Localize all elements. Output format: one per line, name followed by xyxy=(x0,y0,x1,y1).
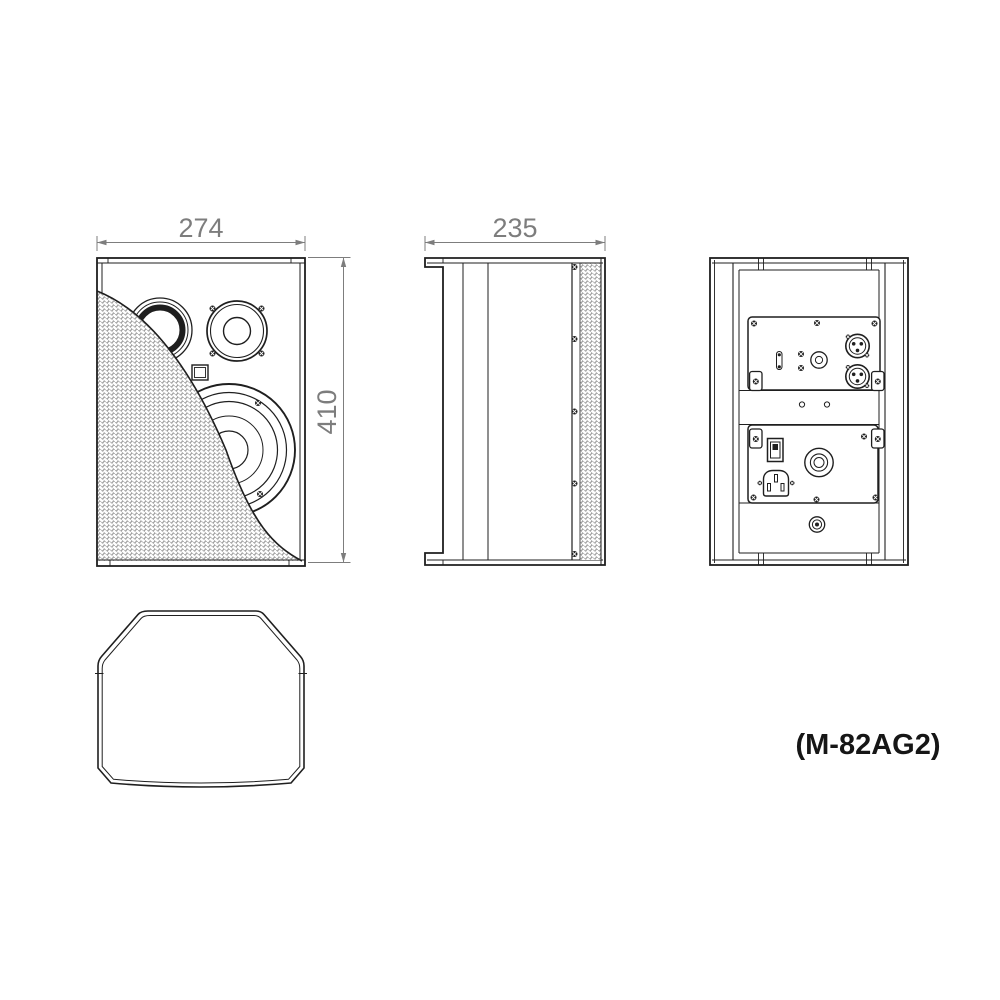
screw-icon xyxy=(257,491,263,497)
mounting-bracket-icon xyxy=(872,429,884,448)
screw-icon xyxy=(751,321,757,327)
mounting-bracket-icon xyxy=(750,372,762,391)
screw-icon xyxy=(873,495,879,501)
screw-icon xyxy=(572,409,578,415)
arrowhead-icon xyxy=(341,258,346,268)
rear-lower-panel xyxy=(748,425,884,503)
screw-icon xyxy=(255,400,261,406)
speaker-technical-drawing: 274 235 410 (M-82AG2) xyxy=(0,0,1000,1000)
arrowhead-icon xyxy=(296,240,306,245)
side-cabinet-outline xyxy=(425,258,605,565)
rear-cabinet-outline xyxy=(710,258,908,565)
screw-icon xyxy=(814,497,820,503)
screw-icon xyxy=(798,365,804,371)
mounting-bracket-icon xyxy=(750,429,762,448)
front-view xyxy=(97,258,305,566)
model-label: (M-82AG2) xyxy=(795,729,940,761)
plan-outer-outline xyxy=(98,611,304,787)
dimension-front-height: 410 xyxy=(308,258,351,563)
mounting-bracket-icon xyxy=(872,372,884,391)
screw-icon xyxy=(872,321,878,327)
arrowhead-icon xyxy=(341,553,346,563)
dim-label-front-width: 274 xyxy=(178,213,223,243)
dimension-side-depth: 235 xyxy=(425,213,605,251)
screw-icon xyxy=(210,306,216,312)
dimension-front-width: 274 xyxy=(97,213,305,251)
rear-upper-panel xyxy=(748,317,884,391)
dim-label-front-height: 410 xyxy=(312,389,342,434)
screw-icon xyxy=(572,264,578,270)
grille-mesh-icon xyxy=(580,258,601,565)
screw-icon xyxy=(259,306,265,312)
screw-icon xyxy=(259,351,265,357)
side-view xyxy=(425,258,605,565)
screw-icon xyxy=(572,336,578,342)
screw-icon xyxy=(798,351,804,357)
screw-icon xyxy=(572,551,578,557)
plan-view xyxy=(95,611,307,787)
arrowhead-icon xyxy=(425,240,435,245)
arrowhead-icon xyxy=(596,240,606,245)
speaker-technical-drawing-page: 274 235 410 (M-82AG2) xyxy=(0,0,1000,1000)
screw-icon xyxy=(751,495,757,501)
screw-icon xyxy=(814,320,820,326)
screw-icon xyxy=(572,481,578,487)
rear-view xyxy=(710,258,908,565)
dim-label-side-depth: 235 xyxy=(492,213,537,243)
screw-icon xyxy=(210,351,216,357)
screw-icon xyxy=(861,434,867,440)
arrowhead-icon xyxy=(97,240,107,245)
